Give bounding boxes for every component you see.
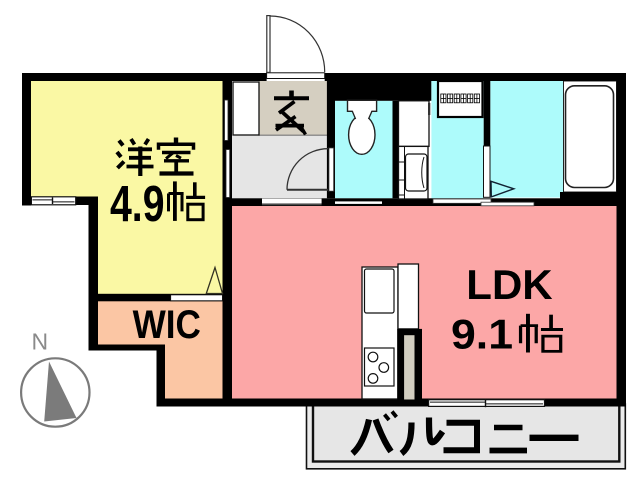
svg-text:WIC: WIC: [133, 303, 201, 347]
svg-text:N: N: [32, 329, 49, 355]
svg-text:LDK: LDK: [466, 261, 552, 308]
svg-text:4.9: 4.9: [110, 175, 165, 232]
svg-text:9.1: 9.1: [451, 311, 513, 358]
